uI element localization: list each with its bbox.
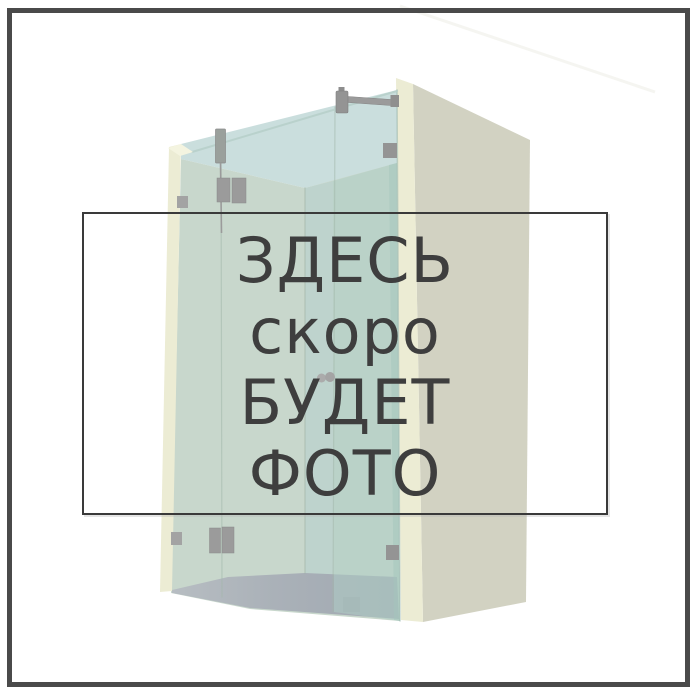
left-post-clamp bbox=[216, 129, 226, 163]
faint-streak-artifact bbox=[400, 6, 655, 92]
product-photo-placeholder: ЗДЕСЬ скоро БУДЕТ ФОТО bbox=[0, 0, 700, 700]
glass-clamp-small-lower bbox=[171, 532, 182, 545]
placeholder-line-4: ФОТО bbox=[84, 438, 606, 509]
placeholder-lines: ЗДЕСЬ скоро БУДЕТ ФОТО bbox=[84, 214, 606, 509]
glass-clamp-lower-left-b bbox=[222, 527, 234, 553]
support-bar-clamp bbox=[336, 91, 348, 113]
glass-clamp-lower-right bbox=[386, 545, 399, 560]
placeholder-text-box: ЗДЕСЬ скоро БУДЕТ ФОТО bbox=[82, 212, 608, 515]
placeholder-line-3: БУДЕТ bbox=[84, 367, 606, 438]
glass-clamp-upper-left-a bbox=[217, 178, 230, 202]
glass-clamp-lower-left-a bbox=[210, 528, 221, 553]
glass-clamp-upper-left-b bbox=[232, 178, 246, 203]
glass-clamp-small-upper bbox=[177, 196, 188, 208]
support-bar-wall-bracket bbox=[391, 95, 400, 107]
glass-clamp-upper-right bbox=[383, 143, 397, 158]
placeholder-line-2: скоро bbox=[84, 296, 606, 367]
placeholder-line-1: ЗДЕСЬ bbox=[84, 225, 606, 296]
